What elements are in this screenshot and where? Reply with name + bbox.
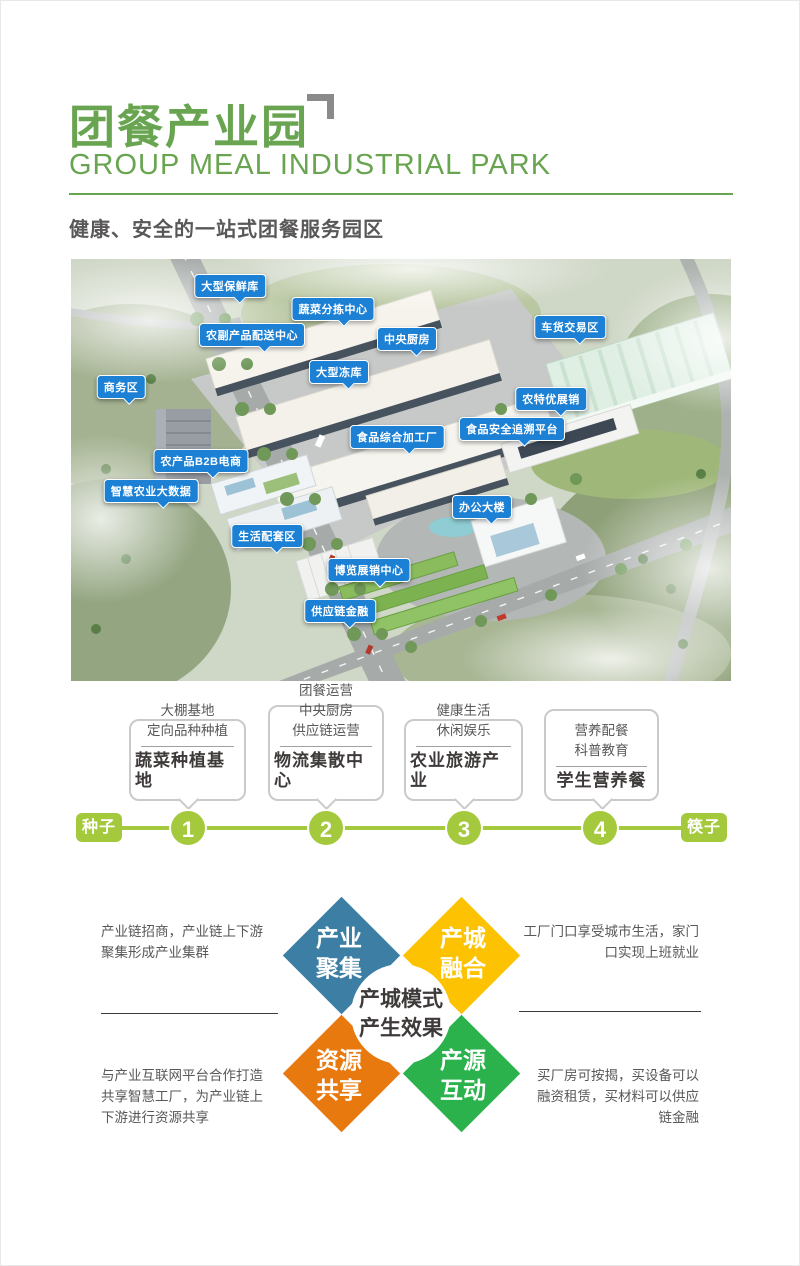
map-label-7: 商务区	[97, 375, 146, 399]
map-label-15: 博览展销中心	[328, 558, 411, 582]
note-divider-left	[101, 1013, 278, 1014]
map-label-11: 农产品B2B电商	[153, 449, 248, 473]
map-label-4: 中央厨房	[377, 327, 437, 351]
timeline-step-4: 4	[581, 809, 619, 847]
bubble-tail-icon	[591, 789, 612, 810]
map-label-12: 智慧农业大数据	[104, 479, 199, 503]
page: 团餐产业园 GROUP MEAL INDUSTRIAL PARK 健康、安全的一…	[0, 0, 800, 1266]
map-label-6: 大型冻库	[309, 360, 369, 384]
timeline-step-2: 2	[307, 809, 345, 847]
note-top-right: 工厂门口享受城市生活，家门 口实现上班就业	[509, 921, 699, 963]
timeline-bubble-3: 健康生活 休闲娱乐 农业旅游产业	[404, 719, 523, 801]
bubble-divider	[556, 766, 647, 767]
tagline: 健康、安全的一站式团餐服务园区	[69, 213, 384, 242]
bubble-divider	[141, 746, 233, 747]
corner-bracket-icon	[307, 94, 334, 119]
bubble-tail-icon	[453, 789, 474, 810]
map-label-5: 车货交易区	[534, 315, 606, 339]
timeline-bubble-2: 团餐运营 中央厨房 供应链运营 物流集散中心	[268, 705, 384, 801]
map-label-9: 食品安全追溯平台	[459, 417, 565, 441]
map-label-8: 农特优展销	[515, 387, 587, 411]
diamond-label-3: 资源共享	[314, 1045, 364, 1105]
timeline-start-tag: 种子	[76, 813, 122, 842]
map-label-13: 办公大楼	[452, 495, 512, 519]
diamond-label-1: 产业聚集	[314, 923, 364, 983]
header-divider	[69, 193, 733, 195]
note-top-left: 产业链招商，产业链上下游 聚集形成产业集群	[101, 921, 277, 963]
timeline-step-3: 3	[445, 809, 483, 847]
map-label-3: 农副产品配送中心	[199, 323, 305, 347]
park-aerial-map: 大型保鲜库 蔬菜分拣中心 农副产品配送中心 中央厨房 车货交易区 大型冻库 商务…	[71, 259, 731, 681]
bubble-divider	[416, 746, 510, 747]
map-label-16: 供应链金融	[304, 599, 376, 623]
note-bottom-right: 买厂房可按揭，买设备可以 融资租赁，买材料可以供应 链金融	[513, 1065, 699, 1128]
diamond-label-4: 产源互动	[438, 1045, 488, 1105]
timeline-bubble-1: 大棚基地 定向品种种植 蔬菜种植基地	[129, 719, 246, 801]
map-label-1: 大型保鲜库	[194, 274, 266, 298]
map-label-14: 生活配套区	[231, 524, 303, 548]
bubble-tail-icon	[177, 789, 198, 810]
note-divider-right	[519, 1011, 701, 1012]
timeline-step-1: 1	[169, 809, 207, 847]
page-subtitle-en: GROUP MEAL INDUSTRIAL PARK	[69, 149, 551, 182]
bubble-divider	[280, 746, 372, 747]
bubble-tail-icon	[316, 789, 337, 810]
page-title: 团餐产业园	[69, 91, 309, 157]
timeline-bubble-4: 营养配餐 科普教育 学生营养餐	[544, 709, 659, 801]
map-label-2: 蔬菜分拣中心	[292, 297, 375, 321]
note-bottom-left: 与产业互联网平台合作打造 共享智慧工厂，为产业链上 下游进行资源共享	[101, 1065, 277, 1128]
map-label-10: 食品综合加工厂	[350, 425, 445, 449]
timeline-end-tag: 筷子	[681, 813, 727, 842]
effects-center-circle: 产城模式 产生效果	[351, 964, 451, 1064]
effects-center-text: 产城模式 产生效果	[359, 985, 443, 1043]
diamond-label-2: 产城融合	[438, 923, 488, 983]
